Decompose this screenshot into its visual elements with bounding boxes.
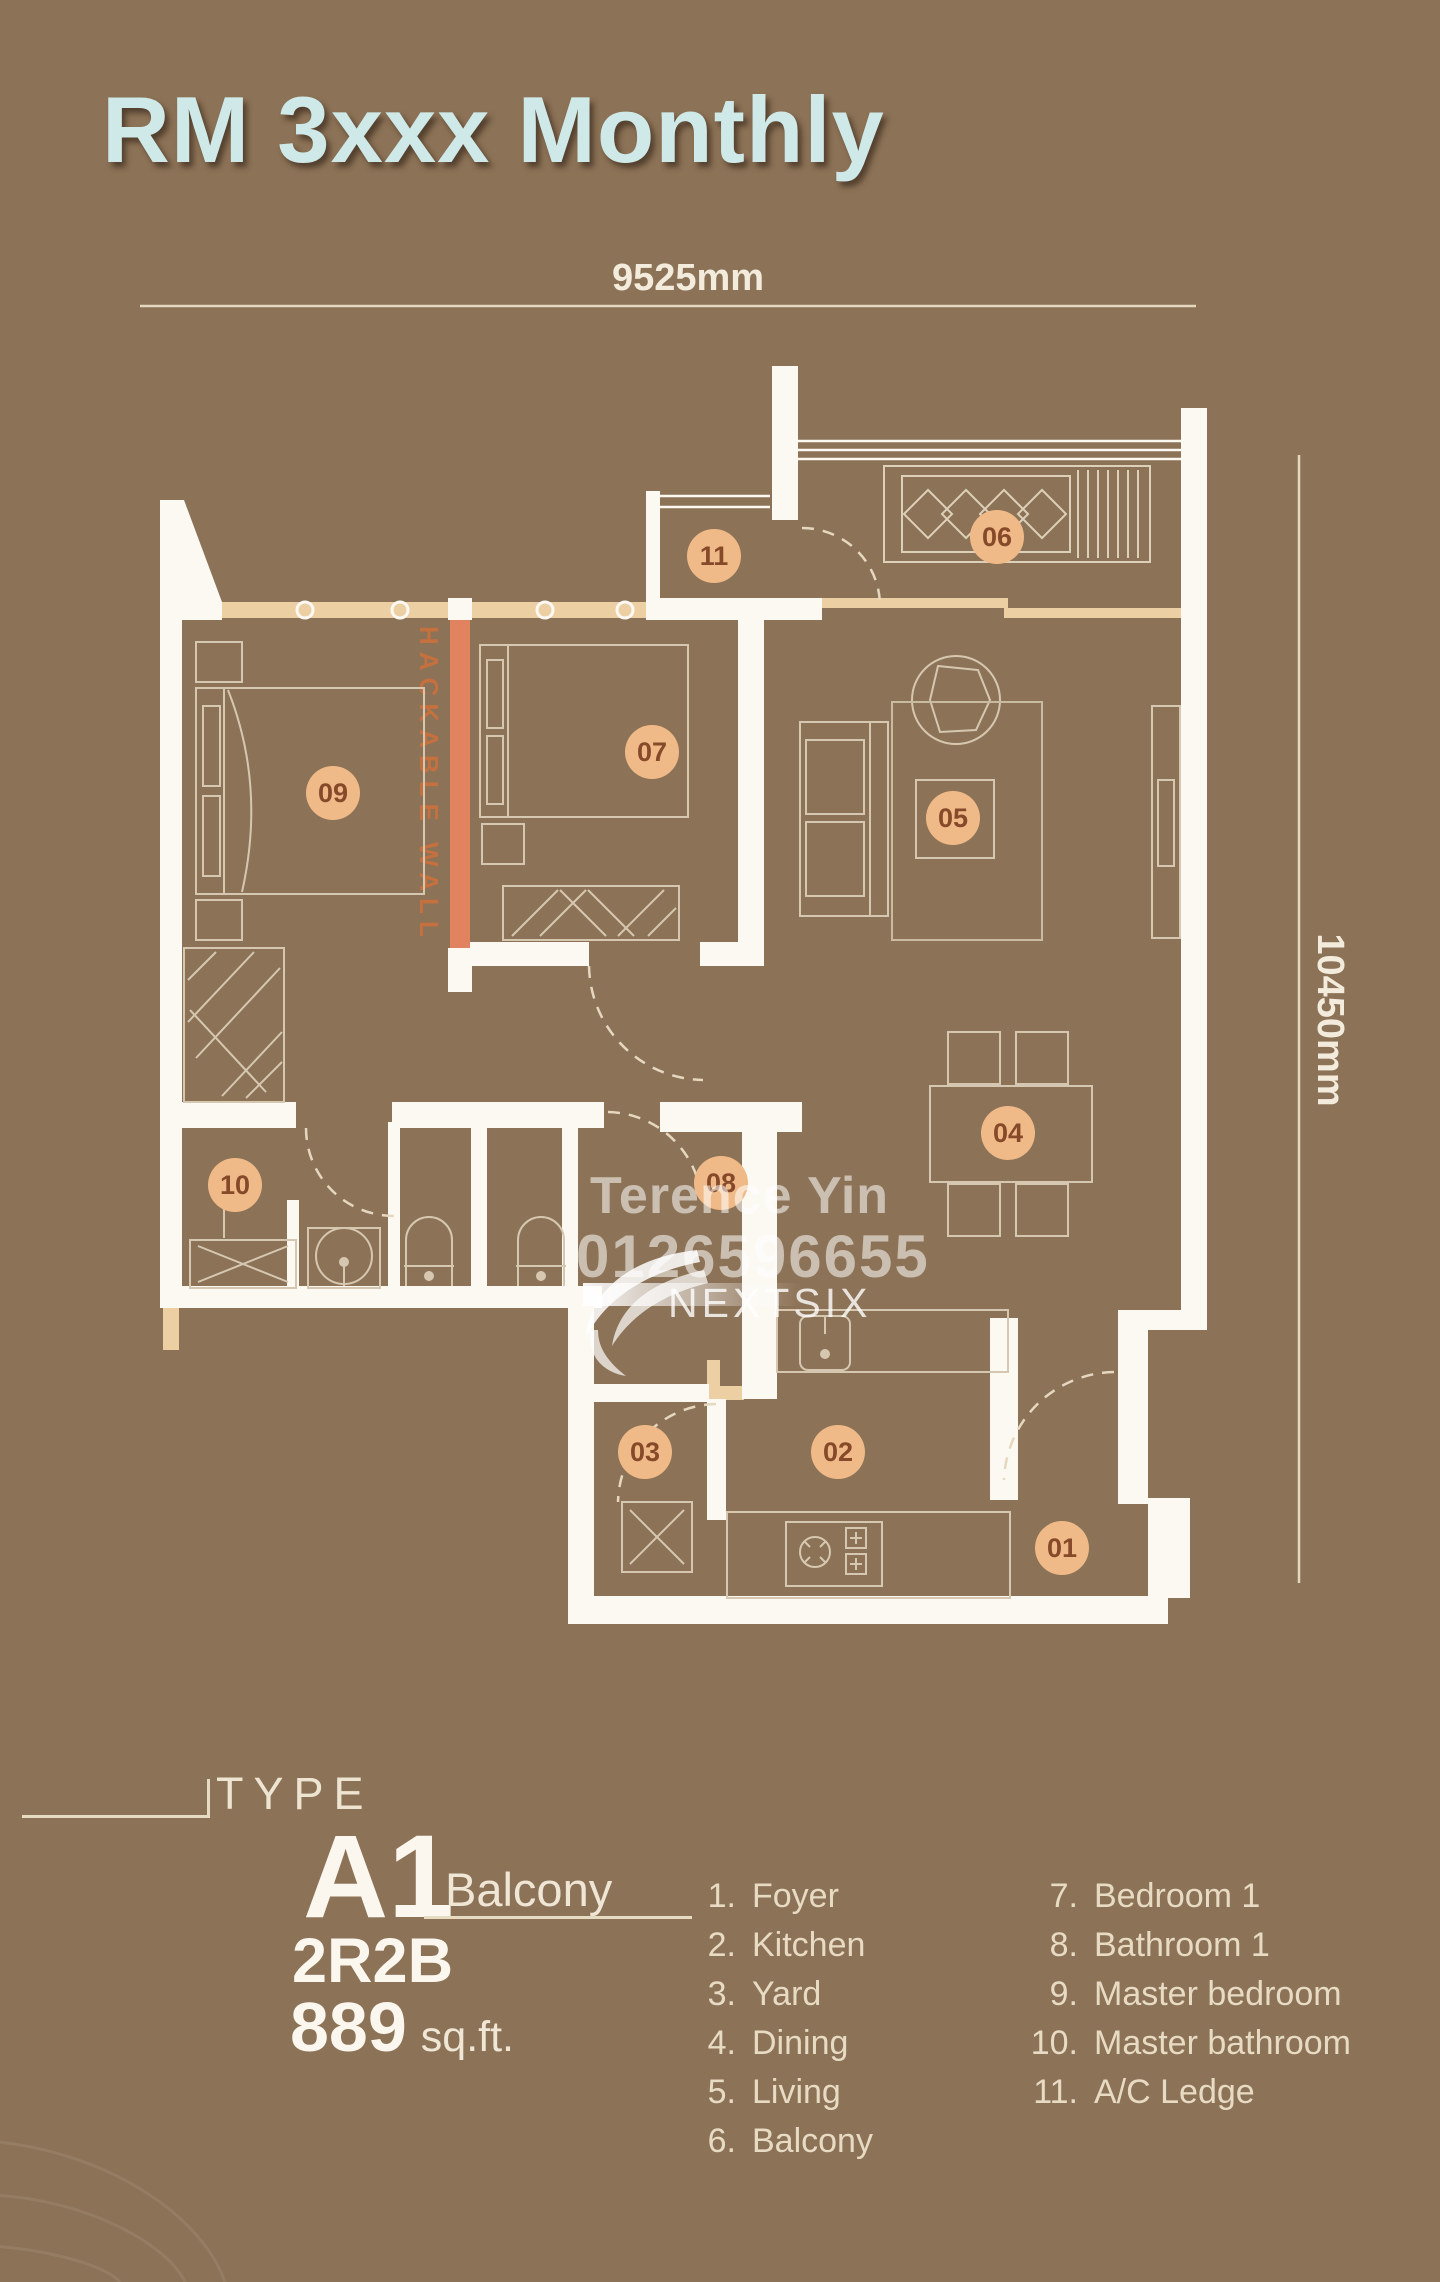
legend-column-2: 7.Bedroom 18.Bathroom 19.Master bedroom1… xyxy=(1022,1872,1351,2117)
legend-item: 3.Yard xyxy=(690,1970,873,2019)
unit-layout-code: 2R2B xyxy=(292,1930,453,1993)
legend-item: 2.Kitchen xyxy=(690,1921,873,1970)
legend-item: 7.Bedroom 1 xyxy=(1022,1872,1351,1921)
legend-item: 5.Living xyxy=(690,2068,873,2117)
legend-item: 10.Master bathroom xyxy=(1022,2019,1351,2068)
room-marker-05: 05 xyxy=(926,791,980,845)
legend-item: 4.Dining xyxy=(690,2019,873,2068)
poster: RM 3xxx Monthly 9525mm 10450mm xyxy=(0,0,1440,2282)
room-marker-04: 04 xyxy=(981,1106,1035,1160)
room-marker-03: 03 xyxy=(618,1425,672,1479)
legend-item: 8.Bathroom 1 xyxy=(1022,1921,1351,1970)
unit-variant: Balcony xyxy=(445,1862,612,1917)
room-marker-07: 07 xyxy=(625,725,679,779)
room-marker-08: 08 xyxy=(694,1156,748,1210)
legend-column-1: 1.Foyer2.Kitchen3.Yard4.Dining5.Living6.… xyxy=(690,1872,873,2166)
legend-item: 9.Master bedroom xyxy=(1022,1970,1351,2019)
room-marker-09: 09 xyxy=(306,766,360,820)
room-marker-06: 06 xyxy=(970,510,1024,564)
legend-item: 6.Balcony xyxy=(690,2117,873,2166)
type-bracket-line xyxy=(22,1779,210,1818)
unit-underline xyxy=(424,1916,692,1919)
unit-area: 889 sq.ft. xyxy=(290,1992,514,2062)
legend-item: 11.A/C Ledge xyxy=(1022,2068,1351,2117)
room-marker-11: 11 xyxy=(687,529,741,583)
room-marker-02: 02 xyxy=(811,1425,865,1479)
unit-area-unit: sq.ft. xyxy=(421,2016,514,2059)
room-marker-10: 10 xyxy=(208,1158,262,1212)
unit-area-value: 889 xyxy=(290,1992,407,2062)
room-marker-01: 01 xyxy=(1035,1521,1089,1575)
legend-item: 1.Foyer xyxy=(690,1872,873,1921)
